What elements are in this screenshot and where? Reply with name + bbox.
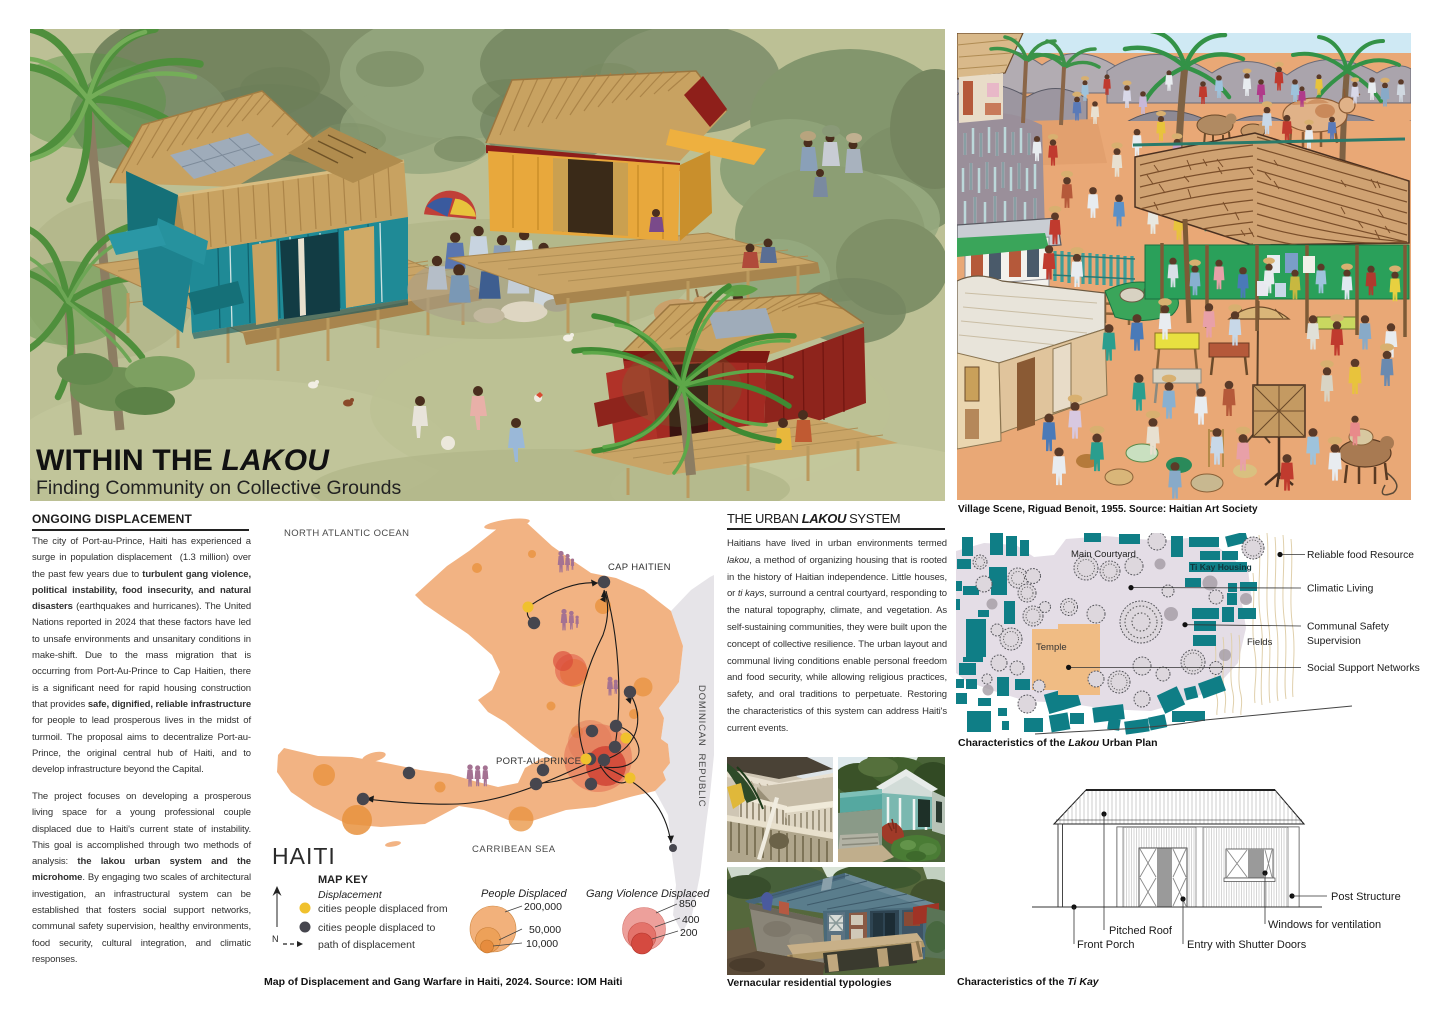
svg-text:Displacement: Displacement — [318, 889, 383, 901]
svg-text:cities people displaced from: cities people displaced from — [318, 903, 448, 915]
svg-text:cities people displaced to: cities people displaced to — [318, 922, 435, 934]
svg-text:N: N — [272, 934, 279, 944]
svg-text:Front Porch: Front Porch — [1077, 939, 1134, 951]
svg-text:Pitched Roof: Pitched Roof — [1109, 925, 1173, 937]
svg-text:Entry with Shutter Doors: Entry with Shutter Doors — [1187, 939, 1307, 951]
svg-text:Communal Safety: Communal Safety — [1307, 622, 1390, 633]
svg-text:NORTH ATLANTIC OCEAN: NORTH ATLANTIC OCEAN — [284, 528, 409, 539]
svg-text:Climatic Living: Climatic Living — [1307, 584, 1374, 595]
svg-text:HAITI: HAITI — [272, 843, 336, 869]
svg-text:Windows for ventilation: Windows for ventilation — [1268, 919, 1381, 931]
svg-text:path of displacement: path of displacement — [318, 939, 415, 951]
svg-text:Ti Kay Housing: Ti Kay Housing — [1190, 562, 1252, 572]
svg-text:CAP HAITIEN: CAP HAITIEN — [608, 562, 671, 573]
svg-text:MAP KEY: MAP KEY — [318, 874, 369, 886]
svg-text:Post Structure: Post Structure — [1331, 891, 1401, 903]
svg-text:400: 400 — [682, 914, 700, 926]
svg-text:People Displaced: People Displaced — [481, 888, 567, 900]
svg-text:Temple: Temple — [1036, 642, 1067, 653]
svg-text:Supervision: Supervision — [1307, 636, 1361, 647]
svg-text:CARRIBEAN SEA: CARRIBEAN SEA — [472, 844, 556, 855]
svg-text:200: 200 — [680, 927, 698, 939]
svg-text:DOMINICAN REPUBLIC: DOMINICAN REPUBLIC — [696, 685, 707, 807]
svg-text:200,000: 200,000 — [524, 901, 562, 913]
svg-text:Social Support Networks: Social Support Networks — [1307, 663, 1420, 674]
svg-text:50,000: 50,000 — [529, 924, 561, 936]
svg-text:Main Courtyard: Main Courtyard — [1071, 549, 1136, 560]
svg-text:PORT-AU-PRINCE: PORT-AU-PRINCE — [496, 756, 581, 767]
svg-text:850: 850 — [679, 898, 697, 910]
svg-text:10,000: 10,000 — [526, 938, 558, 950]
svg-text:Reliable food Resource: Reliable food Resource — [1307, 550, 1414, 561]
svg-text:Fields: Fields — [1247, 637, 1273, 648]
